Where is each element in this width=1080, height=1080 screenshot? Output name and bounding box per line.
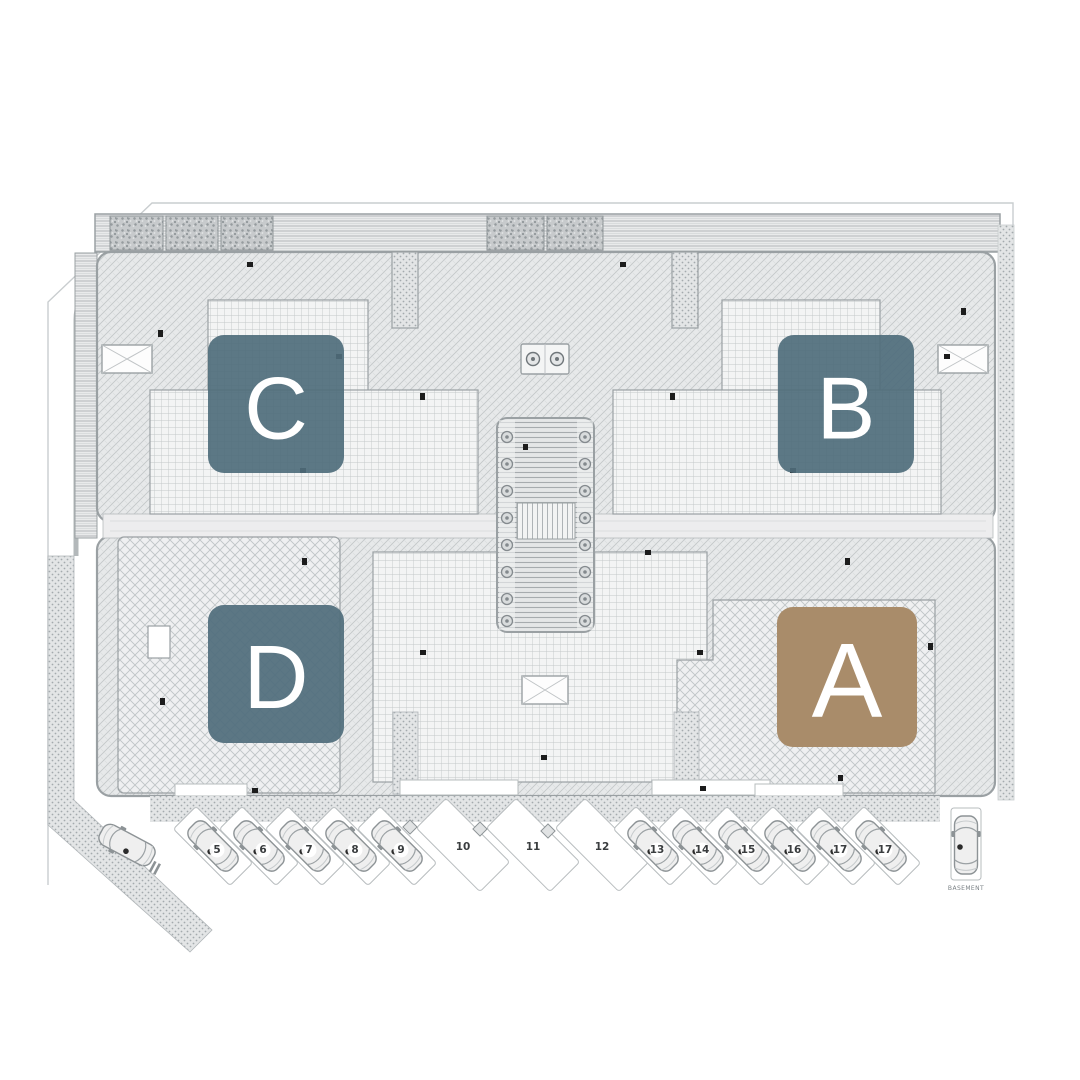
site-plan-page: 5 6 7 8 9 10 11 [0, 0, 1080, 1080]
block-c-letter: C [244, 359, 308, 458]
site-plan-svg: 5 6 7 8 9 10 11 [0, 0, 1080, 1080]
block-d[interactable]: D [208, 605, 344, 743]
space-number: 12 [595, 841, 610, 853]
vent-box [148, 626, 170, 658]
space-number: 17 [833, 844, 848, 856]
left-edge-band [75, 253, 97, 538]
space-number: 6 [259, 844, 266, 856]
space-number: 13 [650, 844, 665, 856]
block-b[interactable]: B [778, 335, 914, 473]
basement-car: BASEMENT [948, 808, 984, 892]
skylight-west [102, 345, 152, 373]
space-number: 11 [526, 841, 541, 853]
block-a-highlighted[interactable]: A [777, 607, 917, 747]
stair-slot-left [392, 252, 418, 328]
block-a-letter: A [812, 622, 883, 740]
stair-slot-right [672, 252, 698, 328]
space-number: 10 [456, 841, 471, 853]
block-b-letter: B [817, 359, 876, 458]
space-number: 9 [397, 844, 404, 856]
space-number: 7 [305, 844, 312, 856]
basement-label: BASEMENT [948, 885, 984, 892]
twin-planter-feature [521, 344, 569, 374]
space-number: 16 [787, 844, 802, 856]
space-number: 8 [351, 844, 358, 856]
space-number: 17 [878, 844, 893, 856]
space-number: 15 [741, 844, 756, 856]
block-d-letter: D [244, 628, 309, 728]
space-number: 14 [695, 844, 710, 856]
pergola [497, 418, 594, 632]
pergola-stair [517, 503, 575, 539]
right-sidewalk-band [998, 225, 1014, 800]
skylight-south [522, 676, 568, 704]
space-number: 5 [213, 844, 220, 856]
block-c[interactable]: C [208, 335, 344, 473]
